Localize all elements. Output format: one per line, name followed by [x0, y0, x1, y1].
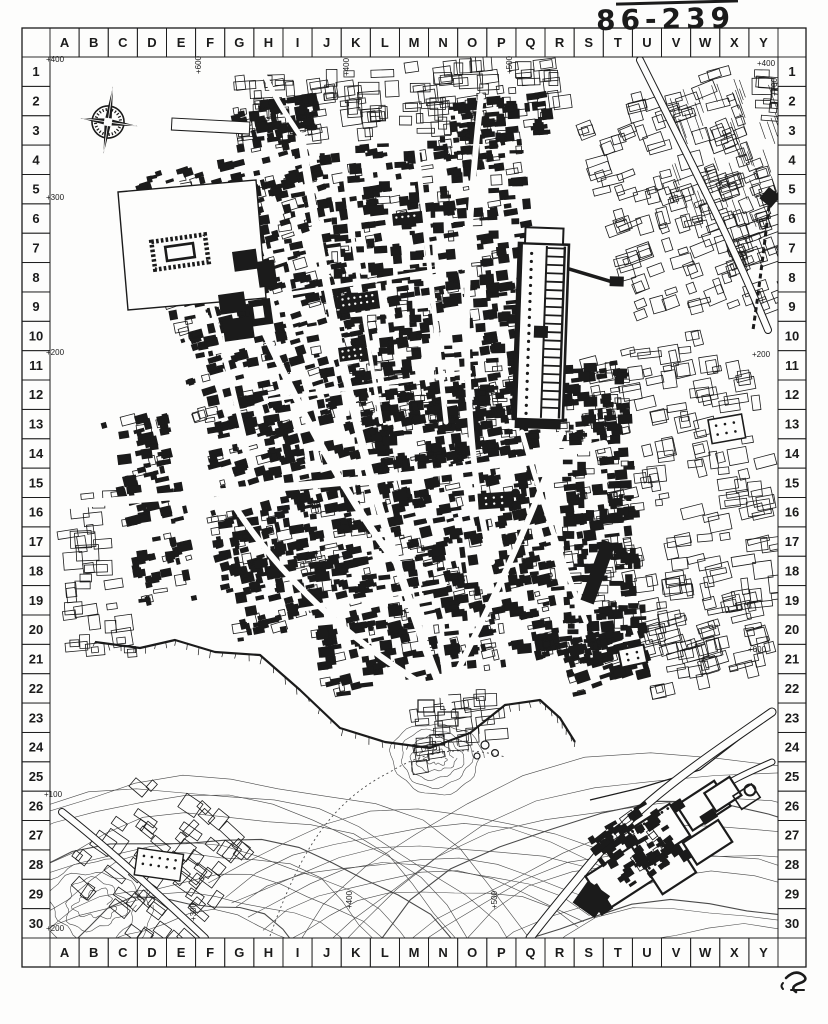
grid-col-label: E — [177, 945, 186, 960]
grid-row-label: 9 — [788, 299, 795, 314]
scanned-map-sheet: 86-239 +400+600+400+500+400+700+300+200+… — [0, 0, 828, 1024]
grid-col-label: B — [89, 945, 98, 960]
grid-row-label: 11 — [785, 358, 799, 373]
grid-col-label: T — [614, 945, 622, 960]
elevation-label: +400 — [342, 57, 351, 76]
grid-row-label: 15 — [785, 475, 799, 490]
grid-col-label: N — [438, 945, 447, 960]
grid-row-label: 27 — [785, 828, 799, 843]
grid-col-label: Y — [759, 945, 768, 960]
grid-row-label: 24 — [785, 740, 800, 755]
grid-row-label: 28 — [785, 857, 799, 872]
grid-row-label: 2 — [788, 94, 795, 109]
city-plan-art — [52, 48, 811, 970]
grid-row-label: 2 — [32, 94, 39, 109]
grid-col-label: S — [584, 35, 593, 50]
grid-row-label: 9 — [32, 299, 39, 314]
grid-row-label: 5 — [788, 182, 795, 197]
grid-col-label: S — [584, 945, 593, 960]
grid-col-label: K — [351, 945, 361, 960]
grid-row-label: 19 — [29, 593, 43, 608]
grid-row-label: 13 — [29, 417, 43, 432]
grid-col-label: F — [206, 945, 214, 960]
grid-row-label: 12 — [29, 387, 43, 402]
grid-col-label: P — [497, 945, 506, 960]
grid-col-label: F — [206, 35, 214, 50]
grid-row-label: 10 — [785, 328, 799, 343]
grid-col-label: X — [730, 35, 739, 50]
grid-row-label: 29 — [29, 886, 43, 901]
grid-row-label: 15 — [29, 475, 43, 490]
grid-row-label: 7 — [788, 240, 795, 255]
grid-col-label: U — [642, 35, 651, 50]
grid-row-label: 16 — [29, 505, 43, 520]
grid-row-label: 6 — [32, 211, 39, 226]
grid-row-label: 1 — [32, 64, 39, 79]
grid-row-label: 8 — [788, 270, 795, 285]
grid-row-label: 24 — [29, 740, 44, 755]
grid-col-label: R — [555, 945, 565, 960]
grid-row-label: 12 — [785, 387, 799, 402]
grid-col-label: P — [497, 35, 506, 50]
grid-row-label: 30 — [29, 916, 43, 931]
grid-row-label: 29 — [785, 886, 799, 901]
grid-row-label: 18 — [29, 563, 43, 578]
grid-col-label: A — [60, 945, 70, 960]
grid-row-label: 13 — [785, 417, 799, 432]
grid-row-label: 20 — [785, 622, 799, 637]
grid-row-label: 8 — [32, 270, 39, 285]
grid-col-label: J — [323, 945, 330, 960]
grid-col-label: E — [177, 35, 186, 50]
compass-rose-icon — [76, 82, 143, 157]
grid-col-label: U — [642, 945, 651, 960]
grid-row-label: 7 — [32, 240, 39, 255]
grid-row-label: 17 — [785, 534, 799, 549]
grid-row-label: 4 — [788, 152, 796, 167]
grid-col-label: Q — [525, 945, 535, 960]
grid-col-label: X — [730, 945, 739, 960]
grid-col-label: T — [614, 35, 622, 50]
grid-row-label: 3 — [32, 123, 39, 138]
elevation-label: +400 — [757, 59, 776, 68]
grid-col-label: C — [118, 945, 128, 960]
elevation-label: +500 — [490, 890, 499, 909]
surveyor-mark-icon — [782, 973, 806, 992]
grid-col-label: Y — [759, 35, 768, 50]
grid-row-label: 6 — [788, 211, 795, 226]
grid-col-label: H — [264, 945, 273, 960]
grid-col-label: V — [672, 945, 681, 960]
grid-col-label: G — [234, 35, 244, 50]
grid-row-label: 10 — [29, 328, 43, 343]
grid-row-label: 19 — [785, 593, 799, 608]
grid-col-label: D — [147, 945, 156, 960]
grid-row-label: 22 — [785, 681, 799, 696]
elevation-label: +600 — [194, 55, 203, 74]
grid-col-label: L — [381, 945, 389, 960]
grid-col-label: I — [296, 35, 300, 50]
grid-row-label: 25 — [29, 769, 43, 784]
grid-row-label: 28 — [29, 857, 43, 872]
grid-row-label: 21 — [785, 652, 799, 667]
grid-row-label: 17 — [29, 534, 43, 549]
grid-row-label: 1 — [788, 64, 795, 79]
grid-row-label: 14 — [29, 446, 44, 461]
grid-row-label: 21 — [29, 652, 43, 667]
grid-row-label: 5 — [32, 182, 39, 197]
elevation-label: +200 — [46, 348, 65, 357]
grid-row-label: 18 — [785, 563, 799, 578]
grid-col-label: R — [555, 35, 565, 50]
grid-col-label: A — [60, 35, 70, 50]
grid-col-label: L — [381, 35, 389, 50]
elevation-label: +200 — [752, 350, 771, 359]
elevation-label: +200 — [46, 924, 65, 933]
elevation-label: +300 — [189, 902, 198, 921]
grid-col-label: J — [323, 35, 330, 50]
grid-col-label: D — [147, 35, 156, 50]
elevation-label: +400 — [345, 890, 354, 909]
elevation-label: +500 — [505, 55, 514, 74]
grid-row-label: 30 — [785, 916, 799, 931]
grid-col-label: W — [699, 945, 712, 960]
grid-row-label: 3 — [788, 123, 795, 138]
grid-row-label: 20 — [29, 622, 43, 637]
grid-col-label: W — [699, 35, 712, 50]
grid-row-label: 16 — [785, 505, 799, 520]
grid-col-label: C — [118, 35, 128, 50]
grid-row-label: 14 — [785, 446, 800, 461]
grid-col-label: V — [672, 35, 681, 50]
grid-col-label: B — [89, 35, 98, 50]
grid-col-label: I — [296, 945, 300, 960]
grid-col-label: K — [351, 35, 361, 50]
grid-row-label: 11 — [29, 358, 43, 373]
grid-row-label: 22 — [29, 681, 43, 696]
grid-row-label: 26 — [785, 798, 799, 813]
grid-col-label: M — [409, 35, 420, 50]
grid-col-label: Q — [525, 35, 535, 50]
grid-row-label: 23 — [29, 710, 43, 725]
grid-col-label: O — [467, 945, 477, 960]
elevation-label: +400 — [46, 55, 65, 64]
grid-row-label: 26 — [29, 798, 43, 813]
elevation-label: +300 — [46, 193, 65, 202]
grid-col-label: H — [264, 35, 273, 50]
grid-row-label: 25 — [785, 769, 799, 784]
contour-lines — [0, 724, 828, 1024]
grid-row-label: 4 — [32, 152, 40, 167]
site-plan-map: +400+600+400+500+400+700+300+200+200+000… — [0, 0, 828, 1024]
elevation-label: +000 — [748, 645, 767, 654]
grid-col-label: N — [438, 35, 447, 50]
grid-col-label: O — [467, 35, 477, 50]
grid-col-label: M — [409, 945, 420, 960]
grid-row-label: 27 — [29, 828, 43, 843]
grid-row-label: 23 — [785, 710, 799, 725]
grid-col-label: G — [234, 945, 244, 960]
